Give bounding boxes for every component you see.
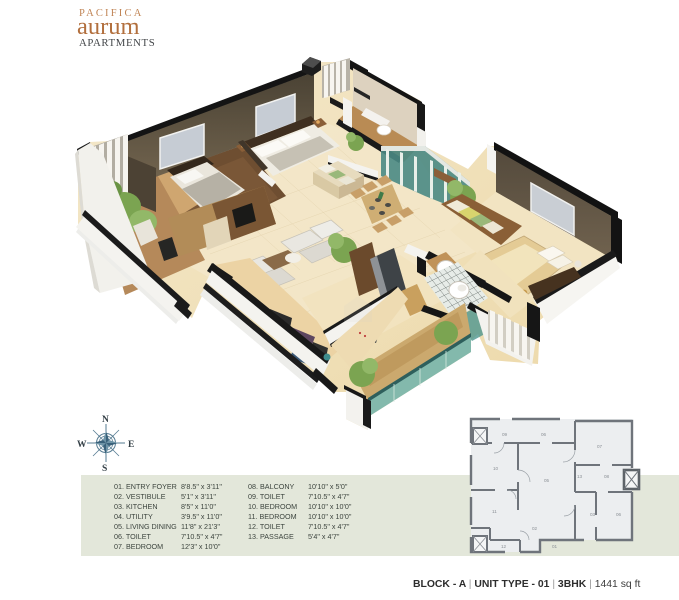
svg-text:5'4" x 4'7": 5'4" x 4'7" — [308, 532, 340, 541]
svg-text:03. KITCHEN: 03. KITCHEN — [114, 502, 158, 511]
svg-text:7'10.5" x 4'7": 7'10.5" x 4'7" — [308, 522, 350, 531]
svg-text:02. VESTIBULE: 02. VESTIBULE — [114, 492, 166, 501]
svg-text:APARTMENTS: APARTMENTS — [79, 37, 155, 49]
svg-text:8'8.5" x 3'11": 8'8.5" x 3'11" — [181, 482, 222, 491]
svg-text:02: 02 — [532, 526, 538, 531]
svg-text:3'9.5" x 11'0": 3'9.5" x 11'0" — [181, 512, 222, 521]
svg-text:07. BEDROOM: 07. BEDROOM — [114, 542, 163, 551]
svg-text:09: 09 — [502, 432, 508, 437]
svg-text:11. BEDROOM: 11. BEDROOM — [248, 512, 297, 521]
svg-text:aurum: aurum — [77, 13, 140, 40]
svg-text:07: 07 — [597, 444, 603, 449]
svg-text:10. BEDROOM: 10. BEDROOM — [248, 502, 297, 511]
svg-text:05: 05 — [544, 478, 550, 483]
svg-text:10: 10 — [493, 466, 499, 471]
svg-text:8'5" x 11'0": 8'5" x 11'0" — [181, 502, 216, 511]
svg-text:08: 08 — [604, 474, 610, 479]
svg-text:E: E — [128, 440, 134, 450]
svg-text:11'8" x 21'3": 11'8" x 21'3" — [181, 522, 220, 531]
svg-text:W: W — [77, 440, 87, 450]
svg-text:03: 03 — [590, 512, 596, 517]
svg-text:12: 12 — [501, 544, 507, 549]
svg-text:7'10.5" x 4'7": 7'10.5" x 4'7" — [308, 492, 350, 501]
svg-text:05. LIVING DINING: 05. LIVING DINING — [114, 522, 177, 531]
svg-text:01: 01 — [552, 544, 558, 549]
svg-text:5'1" x 3'11": 5'1" x 3'11" — [181, 492, 216, 501]
svg-text:S: S — [102, 464, 107, 474]
svg-text:10'10" x 10'0": 10'10" x 10'0" — [308, 512, 352, 521]
svg-text:10'10" x 5'0": 10'10" x 5'0" — [308, 482, 348, 491]
svg-text:11: 11 — [492, 509, 497, 514]
svg-text:13: 13 — [577, 474, 583, 479]
svg-text:06. TOILET: 06. TOILET — [114, 532, 151, 541]
svg-text:12. TOILET: 12. TOILET — [248, 522, 285, 531]
svg-text:06: 06 — [541, 432, 547, 437]
svg-text:N: N — [102, 415, 109, 425]
svg-text:BLOCK - A | UNIT TYPE - 01 | 3: BLOCK - A | UNIT TYPE - 01 | 3BHK | 1441… — [413, 579, 640, 590]
svg-text:04. UTILITY: 04. UTILITY — [114, 512, 153, 521]
svg-text:06: 06 — [616, 512, 622, 517]
svg-text:10'10" x 10'0": 10'10" x 10'0" — [308, 502, 352, 511]
svg-text:12'3" x 10'0": 12'3" x 10'0" — [181, 542, 221, 551]
svg-text:09. TOILET: 09. TOILET — [248, 492, 285, 501]
svg-text:08. BALCONY: 08. BALCONY — [248, 482, 295, 491]
svg-text:7'10.5" x 4'7": 7'10.5" x 4'7" — [181, 532, 223, 541]
svg-text:13. PASSAGE: 13. PASSAGE — [248, 532, 294, 541]
svg-text:01. ENTRY FOYER: 01. ENTRY FOYER — [114, 482, 177, 491]
